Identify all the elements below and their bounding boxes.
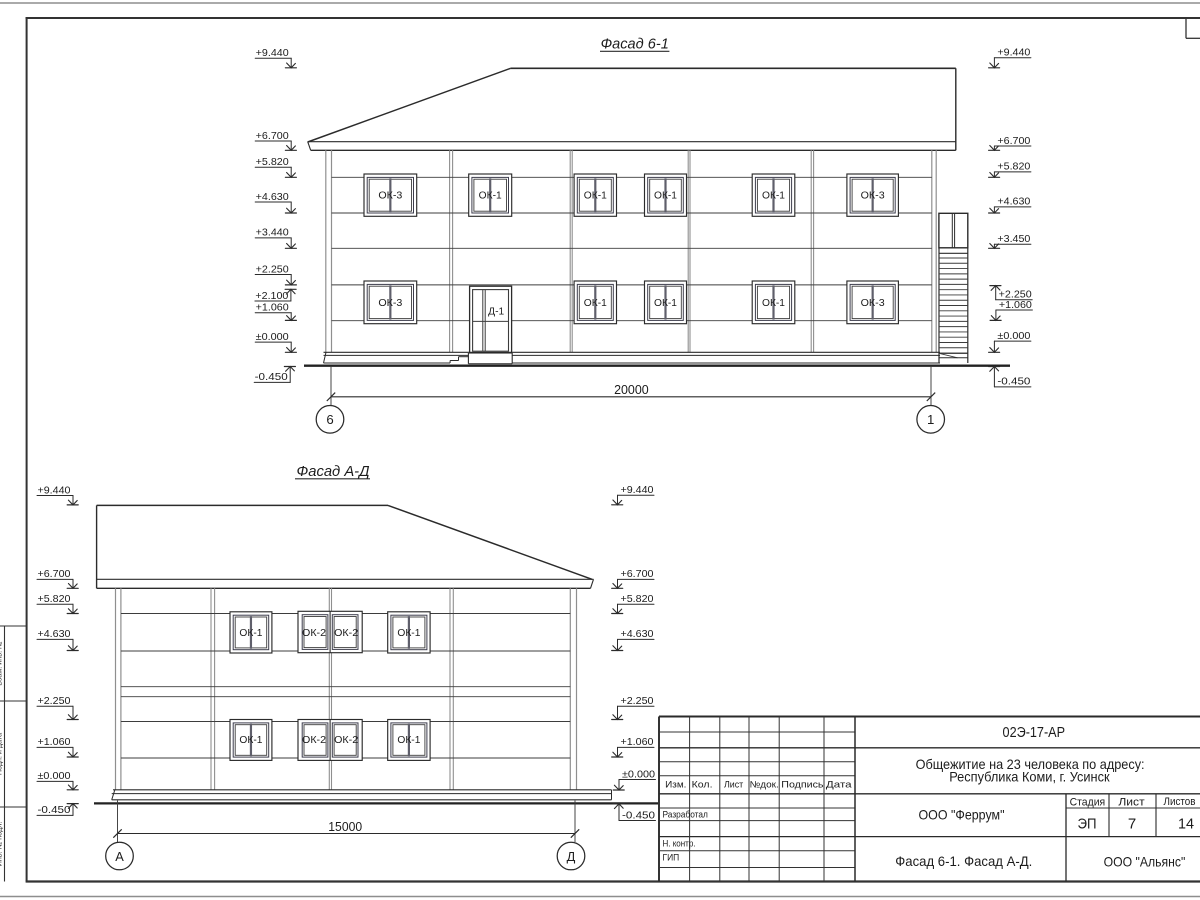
svg-text:02Э-17-АР: 02Э-17-АР	[1003, 725, 1066, 741]
svg-text:ООО "Альянс": ООО "Альянс"	[1104, 855, 1186, 870]
svg-text:-0.450: -0.450	[255, 372, 288, 383]
svg-text:ОК-3: ОК-3	[861, 298, 885, 309]
svg-text:ОК-1: ОК-1	[654, 191, 677, 202]
svg-text:ОК-1: ОК-1	[479, 191, 502, 202]
svg-text:+4.630: +4.630	[38, 629, 71, 640]
svg-text:+3.440: +3.440	[256, 228, 289, 239]
svg-text:+9.440: +9.440	[38, 485, 71, 496]
svg-text:ЭП: ЭП	[1078, 816, 1097, 833]
svg-text:Фасад А-Д: Фасад А-Д	[297, 463, 370, 480]
svg-text:Изм.: Изм.	[665, 780, 686, 790]
svg-text:+2.250: +2.250	[38, 696, 71, 707]
svg-text:ОК-1: ОК-1	[654, 298, 677, 309]
svg-text:ОК-2: ОК-2	[334, 628, 358, 639]
svg-text:ОК-2: ОК-2	[302, 628, 326, 639]
svg-text:Лист: Лист	[724, 780, 744, 790]
svg-text:№док.: №док.	[750, 780, 779, 790]
svg-text:1: 1	[927, 412, 934, 427]
svg-text:ОК-1: ОК-1	[239, 735, 262, 746]
svg-text:ОК-1: ОК-1	[762, 298, 785, 309]
svg-text:+6.700: +6.700	[997, 136, 1030, 147]
svg-text:ОК-1: ОК-1	[397, 628, 420, 639]
svg-text:±0.000: ±0.000	[622, 769, 655, 780]
svg-text:ОК-3: ОК-3	[861, 191, 885, 202]
svg-text:ОК-1: ОК-1	[762, 191, 785, 202]
svg-text:+6.700: +6.700	[256, 131, 289, 142]
svg-text:А: А	[115, 849, 124, 864]
svg-text:+5.820: +5.820	[621, 594, 654, 605]
svg-text:Подп. и дата: Подп. и дата	[0, 733, 3, 775]
svg-text:+6.700: +6.700	[621, 569, 654, 580]
svg-text:Инв. № подл.: Инв. № подл.	[0, 822, 3, 867]
svg-text:14: 14	[1178, 816, 1194, 833]
svg-text:ГИП: ГИП	[663, 853, 680, 864]
svg-text:7: 7	[1128, 816, 1136, 833]
svg-text:+1.060: +1.060	[38, 737, 71, 748]
svg-text:Дата: Дата	[826, 780, 853, 790]
svg-text:+5.820: +5.820	[38, 594, 71, 605]
svg-text:+4.630: +4.630	[997, 197, 1030, 208]
svg-text:ОК-3: ОК-3	[378, 298, 402, 309]
svg-text:-0.450: -0.450	[38, 805, 71, 816]
svg-text:+2.250: +2.250	[621, 696, 654, 707]
svg-text:Кол.: Кол.	[692, 780, 713, 790]
svg-text:ОК-2: ОК-2	[302, 735, 326, 746]
svg-text:+5.820: +5.820	[256, 157, 289, 168]
svg-text:+9.440: +9.440	[621, 485, 654, 496]
svg-text:15000: 15000	[328, 819, 362, 834]
svg-text:-0.450: -0.450	[997, 377, 1030, 388]
svg-text:20000: 20000	[614, 382, 649, 397]
svg-text:Фасад 6-1. Фасад А-Д.: Фасад 6-1. Фасад А-Д.	[895, 853, 1032, 869]
svg-text:Фасад 6-1: Фасад 6-1	[601, 36, 669, 52]
svg-text:Разработал: Разработал	[663, 810, 708, 821]
svg-text:-0.450: -0.450	[622, 810, 655, 821]
svg-text:+4.630: +4.630	[621, 629, 654, 640]
svg-text:Стадия: Стадия	[1070, 796, 1106, 808]
svg-text:±0.000: ±0.000	[38, 771, 71, 782]
svg-text:+9.440: +9.440	[997, 48, 1030, 59]
svg-text:Лист: Лист	[1118, 796, 1144, 808]
svg-text:±0.000: ±0.000	[256, 332, 289, 343]
svg-text:ОК-1: ОК-1	[584, 191, 607, 202]
svg-text:Д: Д	[567, 849, 576, 864]
svg-text:Республика Коми, г. Усинск: Республика Коми, г. Усинск	[949, 770, 1110, 785]
svg-text:ООО "Феррум": ООО "Феррум"	[919, 808, 1005, 823]
svg-text:6: 6	[326, 412, 333, 427]
svg-text:+5.820: +5.820	[997, 162, 1030, 173]
svg-text:Листов: Листов	[1164, 796, 1196, 808]
svg-text:Д-1: Д-1	[488, 307, 504, 318]
svg-text:+2.100: +2.100	[255, 291, 288, 302]
svg-text:Подпись: Подпись	[781, 780, 823, 790]
svg-text:Н. контр.: Н. контр.	[663, 839, 696, 850]
svg-text:ОК-1: ОК-1	[397, 735, 420, 746]
svg-text:+6.700: +6.700	[38, 569, 71, 580]
svg-text:Взам. инв. №: Взам. инв. №	[0, 641, 3, 686]
svg-text:+3.450: +3.450	[997, 234, 1030, 245]
svg-text:ОК-1: ОК-1	[239, 628, 262, 639]
svg-text:±0.000: ±0.000	[997, 331, 1030, 342]
svg-text:ОК-1: ОК-1	[584, 298, 607, 309]
svg-text:ОК-3: ОК-3	[378, 191, 402, 202]
svg-text:+4.630: +4.630	[256, 192, 289, 203]
svg-text:+9.440: +9.440	[256, 48, 289, 59]
svg-text:+1.060: +1.060	[621, 737, 654, 748]
svg-text:+1.060: +1.060	[256, 303, 289, 314]
svg-text:+1.060: +1.060	[999, 300, 1032, 311]
svg-text:ОК-2: ОК-2	[334, 735, 358, 746]
svg-text:+2.250: +2.250	[256, 264, 289, 275]
